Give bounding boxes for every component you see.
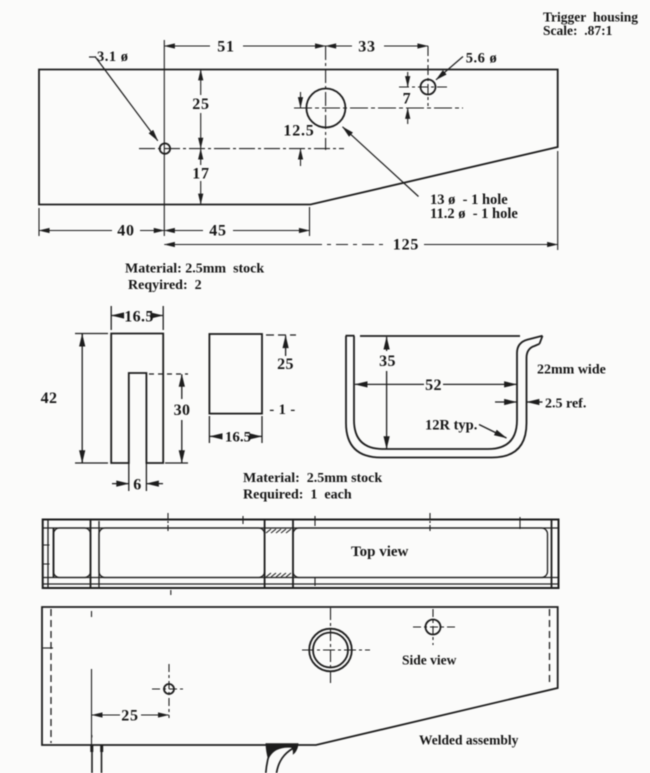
svg-text:22mm wide: 22mm wide <box>537 363 606 378</box>
svg-text:Welded assembly: Welded assembly <box>419 733 519 748</box>
svg-text:45: 45 <box>209 223 227 240</box>
svg-text:33: 33 <box>358 39 376 56</box>
svg-text:35: 35 <box>379 353 396 370</box>
svg-text:7: 7 <box>403 91 412 108</box>
svg-text:30: 30 <box>174 402 191 419</box>
svg-text:25: 25 <box>277 356 294 373</box>
svg-text:17: 17 <box>192 166 210 183</box>
svg-text:52: 52 <box>425 377 442 394</box>
svg-text:16.5: 16.5 <box>225 430 251 446</box>
svg-text:12.5: 12.5 <box>283 123 314 140</box>
svg-text:Side view: Side view <box>402 653 457 668</box>
svg-text:Reqyired: 2: Reqyired: 2 <box>128 278 202 293</box>
svg-text:Required: 1 each: Required: 1 each <box>243 488 352 503</box>
svg-text:51: 51 <box>217 39 235 56</box>
svg-text:125: 125 <box>393 237 419 254</box>
svg-text:- 1 -: - 1 - <box>269 402 295 418</box>
svg-text:3.1 ø: 3.1 ø <box>97 49 129 65</box>
svg-text:11.2 ø - 1 hole: 11.2 ø - 1 hole <box>430 206 518 222</box>
svg-text:25: 25 <box>121 708 139 725</box>
svg-text:12R typ.: 12R typ. <box>425 418 477 434</box>
svg-text:2.5 ref.: 2.5 ref. <box>545 397 586 412</box>
svg-text:42: 42 <box>41 390 58 407</box>
svg-text:6: 6 <box>133 477 141 494</box>
svg-text:16.5: 16.5 <box>124 309 154 326</box>
svg-text:Material: 2.5mm stock: Material: 2.5mm stock <box>125 262 264 277</box>
svg-text:Scale: .87:1: Scale: .87:1 <box>543 23 613 38</box>
svg-text:5.6 ø: 5.6 ø <box>466 51 498 67</box>
svg-text:Top view: Top view <box>351 544 409 560</box>
svg-text:Material: 2.5mm stock: Material: 2.5mm stock <box>243 471 382 486</box>
svg-text:25: 25 <box>192 96 210 113</box>
svg-text:40: 40 <box>117 223 135 240</box>
